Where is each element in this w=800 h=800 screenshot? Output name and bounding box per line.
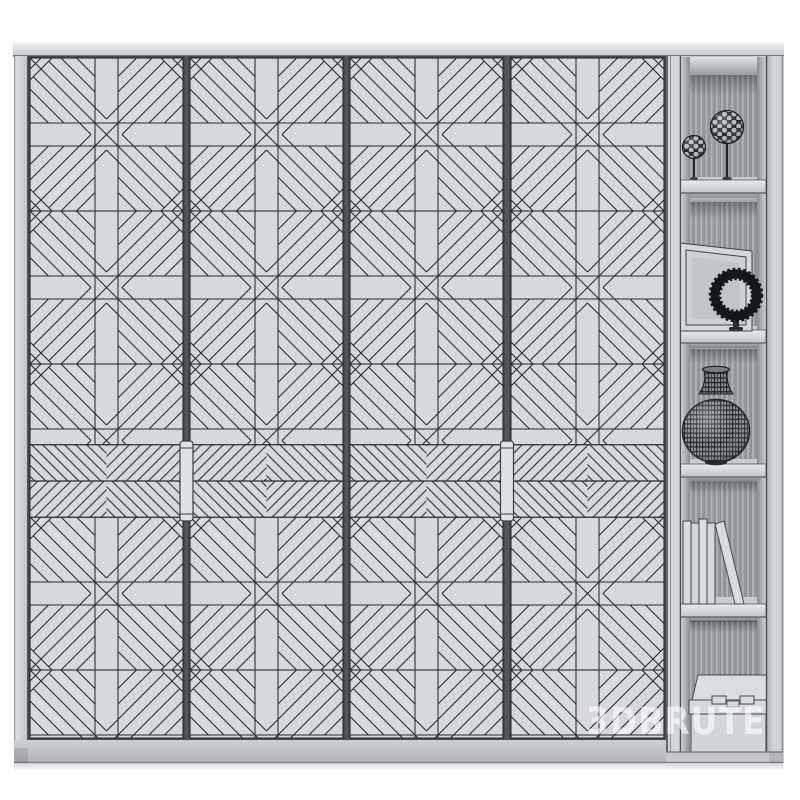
shelf-board-2 — [680, 330, 766, 348]
side-shelf-unit — [666, 56, 784, 763]
render-canvas: 3DBRUTE — [0, 0, 800, 800]
shelf-board-1 — [680, 180, 766, 198]
watermark: 3DBRUTE — [586, 700, 766, 743]
wardrobe-door-4 — [510, 57, 666, 740]
wardrobe-door-2 — [189, 57, 345, 740]
wardrobe-door-1 — [29, 57, 185, 740]
top-panel — [13, 42, 784, 56]
right-side-panel — [766, 56, 783, 763]
floor-shadow — [14, 764, 783, 771]
wardrobe-door-3 — [349, 57, 505, 740]
left-side-panel — [14, 56, 28, 742]
shelf-board-3 — [680, 464, 766, 482]
shelf-board-4 — [680, 604, 766, 622]
door-handle-left — [180, 441, 193, 521]
niche-partition — [666, 56, 681, 763]
wardrobe-render — [0, 0, 800, 800]
door-handle-right — [501, 441, 514, 521]
